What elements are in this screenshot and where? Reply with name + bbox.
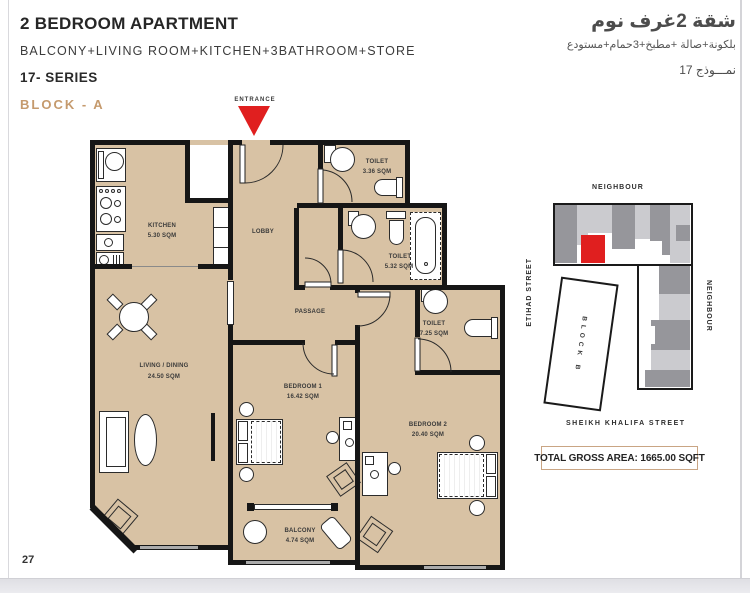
stove-knob <box>105 189 109 193</box>
neighbour-right-label: NEIGHBOUR <box>705 280 712 332</box>
entrance-label: ENTRANCE <box>234 97 275 103</box>
site-unit <box>676 225 690 241</box>
site-corridor <box>643 326 655 344</box>
room-area: 3.36 SQM <box>363 169 392 175</box>
page-bottom-shadow <box>0 578 750 593</box>
sink-icon <box>423 289 448 314</box>
room-label: BEDROOM 1 <box>284 384 322 390</box>
dining-table <box>119 302 149 332</box>
site-corridor <box>612 249 626 263</box>
wc-bowl <box>464 319 492 337</box>
desk-monitor <box>365 456 374 465</box>
page-edge-right <box>740 0 742 578</box>
stove-burner <box>114 200 121 207</box>
arabic-title: شقة 2غرف نوم <box>436 10 736 33</box>
room-label: LOBBY <box>252 229 274 235</box>
pillow <box>238 421 248 441</box>
wc-tank <box>491 317 498 339</box>
desk-lamp <box>345 438 354 447</box>
desk-chair <box>326 431 339 444</box>
wall-segment <box>355 285 360 293</box>
room-area: 16.42 SQM <box>287 394 319 400</box>
sliding-door-jamb <box>331 503 338 511</box>
kitchen-closet <box>213 207 229 268</box>
stove-knob <box>99 189 103 193</box>
opening-living <box>227 281 234 325</box>
sofa-cushions <box>106 417 126 467</box>
sliding-door-jamb <box>247 503 254 511</box>
sheikh-khalifa-street-label: SHEIKH KHALIFA STREET <box>566 420 686 427</box>
site-unit <box>659 294 690 320</box>
wall-segment <box>228 145 233 280</box>
bed-duvet <box>251 421 281 463</box>
wall-segment <box>90 140 190 145</box>
page-number: 27 <box>22 554 34 566</box>
window-bedroom2 <box>424 566 486 569</box>
sliding-door <box>254 504 332 510</box>
sink-icon <box>351 214 376 239</box>
nightstand <box>469 435 485 451</box>
site-corridor <box>639 266 659 306</box>
wall-segment <box>185 198 233 203</box>
room-label: TOILET <box>366 159 388 165</box>
site-unit <box>659 266 690 294</box>
room-area: 24.50 SQM <box>148 374 180 380</box>
closet-shelf <box>213 247 229 248</box>
room-area: 20.40 SQM <box>412 432 444 438</box>
page-subtitle: BALCONY+LIVING ROOM+KITCHEN+3BATHROOM+ST… <box>20 44 416 58</box>
site-unit <box>651 320 690 350</box>
closet-shelf <box>213 227 229 228</box>
site-corridor <box>650 241 662 255</box>
stove-burner <box>100 213 112 225</box>
room-area: 5.32 SQM <box>385 264 414 270</box>
wc-tank <box>396 177 403 198</box>
room-label: KITCHEN <box>148 223 176 229</box>
neighbour-top-label: NEIGHBOUR <box>592 184 644 191</box>
desk-chair <box>388 462 401 475</box>
site-unit <box>651 350 690 370</box>
arabic-subtitle: بلكونة+صالة +مطبخ+3حمام+مستودع <box>436 38 736 51</box>
wall-segment <box>228 505 233 565</box>
pillow <box>486 476 496 497</box>
page-edge-left <box>8 0 9 578</box>
stove-burner <box>114 216 121 223</box>
wc-tank <box>386 211 406 219</box>
wall-segment <box>228 325 233 510</box>
wall-segment <box>330 285 447 290</box>
room-label: PASSAGE <box>295 309 325 315</box>
wall-segment <box>270 140 322 145</box>
wall-segment <box>318 145 323 170</box>
stove-knob <box>111 189 115 193</box>
wall-segment <box>442 203 447 290</box>
entrance-arrow-icon <box>238 106 270 136</box>
nightstand <box>239 402 254 417</box>
page-title: 2 BEDROOM APARTMENT <box>20 14 238 34</box>
etihad-street-label: ETIHAD STREET <box>526 258 533 327</box>
wall-segment <box>297 203 447 208</box>
window-living <box>140 546 198 549</box>
site-unit <box>645 370 690 387</box>
exterior-notch <box>190 145 228 198</box>
site-unit <box>612 205 635 249</box>
stove-knob <box>117 189 121 193</box>
pillow <box>238 443 248 463</box>
wc-bowl <box>374 179 397 196</box>
room-label: TOILET <box>423 321 445 327</box>
site-unit <box>555 205 577 263</box>
room-label: TOILET <box>389 254 411 260</box>
kitchen-basin <box>105 152 124 171</box>
pillow <box>486 454 496 474</box>
site-unit <box>635 205 650 239</box>
kitchen-counter-dot <box>104 238 113 247</box>
room-label: BEDROOM 2 <box>409 422 447 428</box>
wall-segment <box>355 325 360 565</box>
wall-segment <box>294 208 299 290</box>
bed-duvet <box>439 454 484 497</box>
wall-segment <box>90 140 95 512</box>
arabic-model-label: نمـــوذج 17 <box>436 63 736 77</box>
nightstand <box>469 500 485 516</box>
wall-segment <box>185 140 190 203</box>
room-label: BALCONY <box>284 528 315 534</box>
room-area: 4.74 SQM <box>286 538 315 544</box>
total-area-box: TOTAL GROSS AREA: 1665.00 SQFT <box>541 446 698 470</box>
sink-icon <box>330 147 355 172</box>
block-label: BLOCK - A <box>20 97 105 112</box>
site-building-wing <box>637 264 693 390</box>
desk-monitor <box>343 421 352 430</box>
series-label: 17- SERIES <box>20 70 98 85</box>
wall-segment <box>442 285 505 290</box>
total-area-text: TOTAL GROSS AREA: 1665.00 SQFT <box>534 453 705 464</box>
wall-segment <box>405 140 410 208</box>
wall-segment <box>500 285 505 570</box>
nightstand <box>239 467 254 482</box>
tv-unit <box>211 413 215 461</box>
site-map: NEIGHBOUR BLOCK B <box>528 180 723 442</box>
brochure-page: 2 BEDROOM APARTMENT BALCONY+LIVING ROOM+… <box>0 0 750 593</box>
window-balcony <box>246 561 330 564</box>
bathtub-drain <box>424 262 428 266</box>
site-unit <box>588 205 612 233</box>
desk-lamp <box>370 470 379 479</box>
room-area: 5.30 SQM <box>148 233 177 239</box>
balcony-table <box>243 520 267 544</box>
wall-segment <box>415 370 505 375</box>
kitchen-counter-line <box>132 266 198 267</box>
wall-segment <box>90 264 132 269</box>
coffee-table-oval <box>134 414 157 466</box>
kitchen-drainer <box>98 151 104 179</box>
wall-segment <box>297 285 305 290</box>
room-area: 7.25 SQM <box>420 331 449 337</box>
site-building-topbar <box>553 203 693 266</box>
wc-bowl <box>389 220 404 245</box>
block-b-label: BLOCK B <box>573 316 588 374</box>
stove-burner <box>100 197 112 209</box>
wall-segment <box>233 340 305 345</box>
wall-segment <box>338 208 343 250</box>
arabic-header: شقة 2غرف نوم بلكونة+صالة +مطبخ+3حمام+مست… <box>436 10 736 77</box>
site-unit-highlighted <box>581 235 605 263</box>
room-label: LIVING / DINING <box>139 363 188 369</box>
block-b-building: BLOCK B <box>543 277 618 412</box>
wall-segment <box>415 285 420 337</box>
wall-segment <box>322 140 410 145</box>
